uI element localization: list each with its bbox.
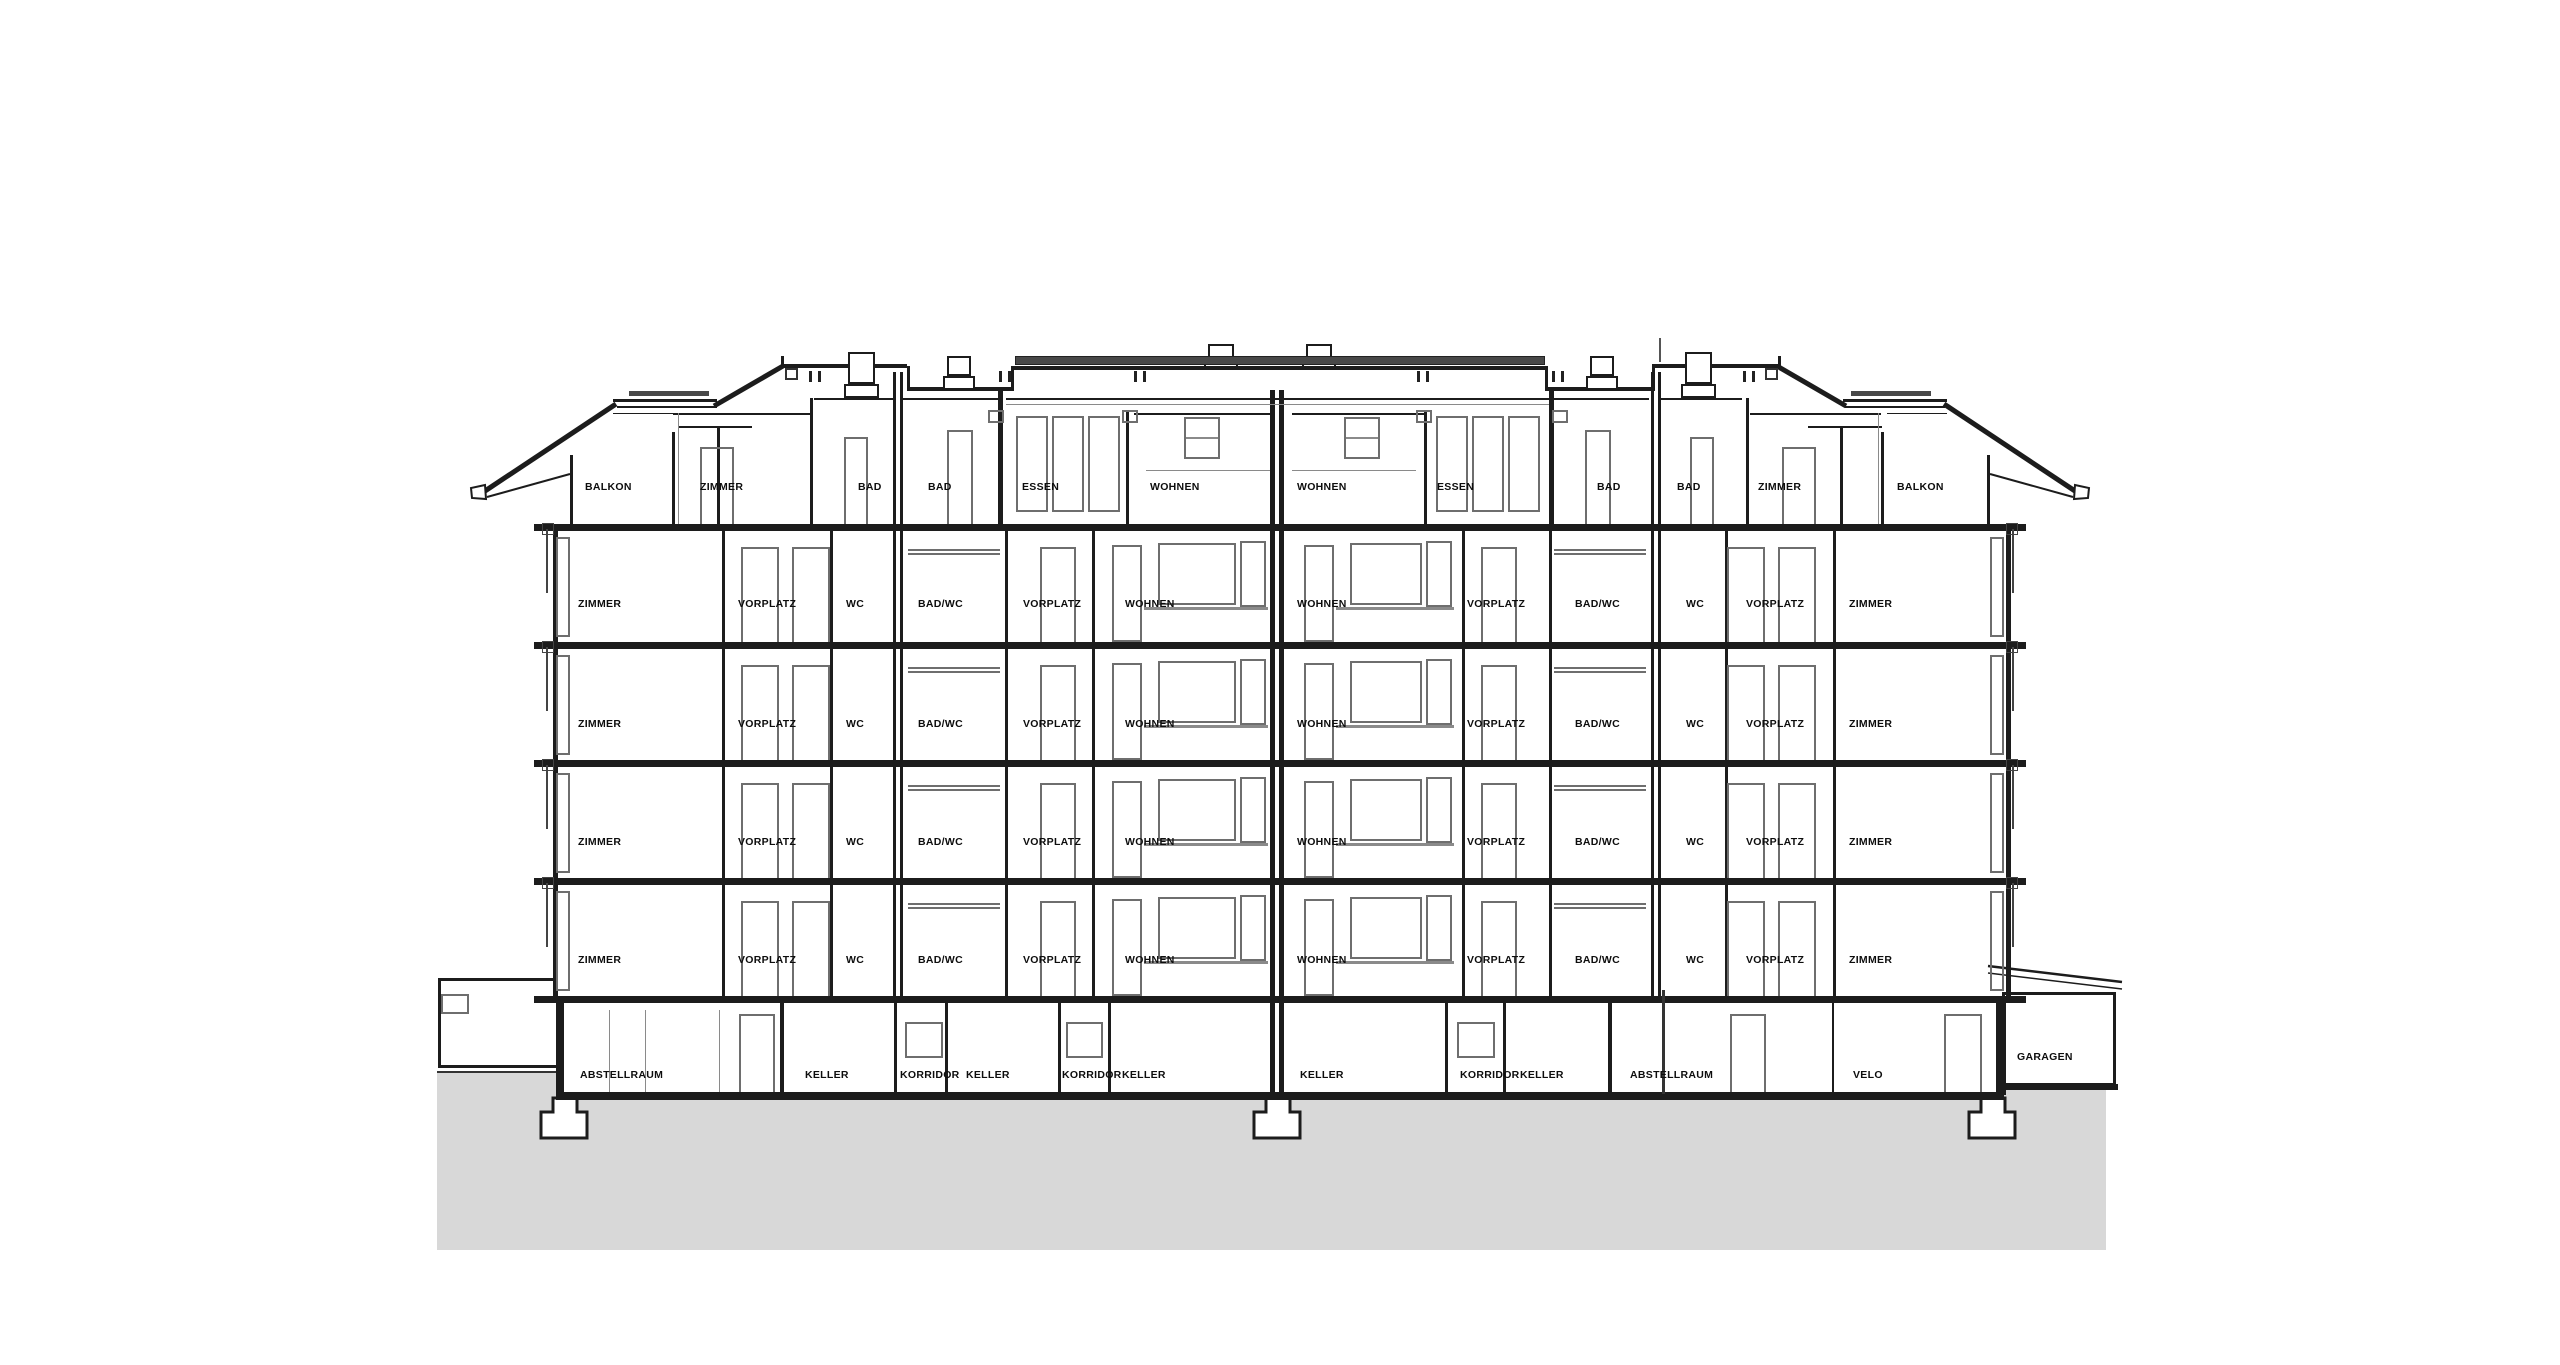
wohnen-tall-door bbox=[1304, 545, 1334, 642]
room-label: KELLER bbox=[1300, 1070, 1344, 1081]
basement-door bbox=[1730, 1014, 1766, 1092]
room-label: BAD/WC bbox=[918, 719, 963, 730]
room-label: BAD/WC bbox=[1575, 955, 1620, 966]
room-label: GARAGEN bbox=[2017, 1052, 2073, 1063]
interior-wall bbox=[1462, 531, 1465, 996]
balcony-railing-right bbox=[2012, 647, 2014, 711]
basement-wall bbox=[1608, 1003, 1612, 1092]
balcony-ceiling bbox=[1887, 413, 1947, 414]
basement-floor-slab bbox=[556, 1092, 2004, 1100]
closet-shelf bbox=[678, 426, 752, 428]
badwc-band bbox=[1554, 549, 1646, 555]
section-drawing: // ---- generic JSON bind ---- const dat… bbox=[0, 0, 2560, 1365]
roof-vent-icon bbox=[999, 371, 1011, 382]
facade-door-left bbox=[556, 773, 570, 873]
badwc-band bbox=[908, 667, 1000, 673]
room-label: VORPLATZ bbox=[1467, 955, 1525, 966]
lightwell-window bbox=[441, 994, 469, 1014]
room-label: KORRIDOR bbox=[1062, 1070, 1122, 1081]
zimmer-roof-band bbox=[1843, 399, 1947, 402]
roof-box-right bbox=[1765, 368, 1778, 380]
vorplatz-door bbox=[1727, 901, 1765, 996]
roof-vent-icon bbox=[809, 371, 821, 382]
chimney bbox=[1685, 352, 1712, 384]
vorplatz-door bbox=[1040, 783, 1076, 878]
attic-ceiling bbox=[1661, 398, 1742, 400]
room-label: WC bbox=[846, 599, 864, 610]
chimney-base bbox=[1681, 384, 1716, 398]
room-label: VORPLATZ bbox=[1467, 719, 1525, 730]
basement-window bbox=[905, 1022, 943, 1058]
roof-box-left bbox=[785, 368, 798, 380]
balcony-railing-left bbox=[546, 647, 548, 711]
wohnen-sill bbox=[1336, 961, 1454, 964]
room-label: BAD bbox=[1597, 482, 1621, 493]
balcony-parapet-right bbox=[1987, 455, 1990, 524]
wohnen-tall-window bbox=[1426, 659, 1452, 725]
vorplatz-door bbox=[1040, 665, 1076, 760]
balcony-bracket-left bbox=[542, 523, 554, 535]
window-rail bbox=[1292, 413, 1424, 415]
slab-nose-right bbox=[2002, 996, 2026, 1003]
attic-ceiling bbox=[673, 413, 810, 415]
vorplatz-door bbox=[741, 783, 779, 878]
badwc-band bbox=[1554, 785, 1646, 791]
attic-wall bbox=[1658, 372, 1661, 524]
wohnen-tall-door bbox=[1304, 781, 1334, 878]
balcony-bracket-left bbox=[542, 641, 554, 653]
room-label: WOHNEN bbox=[1297, 719, 1347, 730]
attic-mullion bbox=[1126, 412, 1129, 524]
interior-wall bbox=[1005, 531, 1008, 996]
gutter-right bbox=[2074, 485, 2089, 499]
basement-partition bbox=[719, 1010, 720, 1092]
balcony-parapet-left bbox=[570, 455, 573, 524]
zimmer-roof-band bbox=[613, 399, 717, 402]
gutter-left bbox=[471, 485, 486, 499]
vorplatz-door bbox=[741, 547, 779, 642]
room-label: WOHNEN bbox=[1150, 482, 1200, 493]
room-label: ZIMMER bbox=[578, 837, 621, 848]
room-label: BAD/WC bbox=[1575, 837, 1620, 848]
wohnen-tall-window bbox=[1240, 895, 1266, 961]
essen-glazing-panel bbox=[1508, 416, 1540, 512]
vorplatz-door bbox=[741, 665, 779, 760]
essen-glazing-panel bbox=[1052, 416, 1084, 512]
interior-wall bbox=[1658, 531, 1661, 996]
room-label: ABSTELLRAUM bbox=[580, 1070, 663, 1081]
facade-door-right bbox=[1990, 773, 2004, 873]
room-label: BAD bbox=[928, 482, 952, 493]
vorplatz-door bbox=[741, 901, 779, 996]
attic-bad-door bbox=[947, 430, 973, 524]
basement-wall bbox=[894, 1003, 897, 1092]
solar-strip-left bbox=[629, 391, 709, 396]
wall-box-icon bbox=[988, 410, 1004, 423]
eave-soffit-left bbox=[487, 474, 570, 497]
room-label: KELLER bbox=[966, 1070, 1010, 1081]
room-label: VORPLATZ bbox=[738, 955, 796, 966]
wohnen-tall-door bbox=[1112, 663, 1142, 760]
wohnen-tall-window bbox=[1240, 541, 1266, 607]
room-label: WC bbox=[846, 955, 864, 966]
vorplatz-door bbox=[1481, 547, 1517, 642]
room-label: WOHNEN bbox=[1297, 955, 1347, 966]
room-label: ZIMMER bbox=[578, 955, 621, 966]
room-label: ESSEN bbox=[1437, 482, 1474, 493]
basement-wall bbox=[1270, 1003, 1275, 1092]
wohnen-tall-door bbox=[1304, 663, 1334, 760]
wohnen-tall-window bbox=[1240, 659, 1266, 725]
roof-flat bbox=[1011, 366, 1548, 370]
room-label: BAD/WC bbox=[918, 955, 963, 966]
chimney bbox=[848, 352, 875, 384]
essen-glazing-panel bbox=[1472, 416, 1504, 512]
room-label: WC bbox=[846, 837, 864, 848]
room-label: KELLER bbox=[1520, 1070, 1564, 1081]
wohnen-tall-window bbox=[1426, 895, 1452, 961]
interior-wall bbox=[830, 531, 833, 996]
window-rail bbox=[1134, 413, 1270, 415]
roof-step bbox=[1011, 366, 1014, 391]
balcony-railing-right bbox=[2012, 529, 2014, 593]
room-label: WOHNEN bbox=[1125, 955, 1175, 966]
wohnen-wide-window bbox=[1350, 779, 1422, 841]
attic-square-window bbox=[1344, 417, 1380, 459]
room-label: ZIMMER bbox=[1849, 719, 1892, 730]
solar-strip-main bbox=[1015, 356, 1545, 365]
attic-ceiling bbox=[1006, 398, 1549, 400]
attic-wall bbox=[1881, 432, 1884, 524]
room-label: VORPLATZ bbox=[1023, 719, 1081, 730]
wohnen-sill bbox=[1336, 607, 1454, 610]
facade-door-left bbox=[556, 655, 570, 755]
room-label: BALKON bbox=[1897, 482, 1944, 493]
badwc-band bbox=[908, 549, 1000, 555]
roof-vent-icon bbox=[1743, 371, 1755, 382]
room-label: KELLER bbox=[805, 1070, 849, 1081]
vorplatz-door bbox=[792, 665, 830, 760]
attic-ceiling bbox=[1552, 398, 1649, 400]
roof-step bbox=[1778, 356, 1781, 368]
vorplatz-door bbox=[792, 547, 830, 642]
vorplatz-door bbox=[792, 901, 830, 996]
room-label: WC bbox=[1686, 837, 1704, 848]
interior-wall bbox=[1833, 531, 1836, 996]
vorplatz-door bbox=[1040, 901, 1076, 996]
attic-wall bbox=[893, 372, 896, 524]
facade-door-right bbox=[1990, 655, 2004, 755]
wohnen-tall-door bbox=[1112, 545, 1142, 642]
roof-step bbox=[781, 356, 784, 368]
attic-party-wall bbox=[1270, 390, 1275, 524]
interior-wall bbox=[1092, 531, 1095, 996]
room-label: BAD/WC bbox=[918, 837, 963, 848]
room-label: ZIMMER bbox=[700, 482, 743, 493]
roof-flat bbox=[1652, 364, 1778, 368]
balcony-railing-left bbox=[546, 529, 548, 593]
roof-slope-right-lower bbox=[1944, 404, 2075, 491]
wohnen-wide-window bbox=[1158, 661, 1236, 723]
attic-mullion bbox=[1424, 412, 1427, 524]
balcony-railing-right bbox=[2012, 765, 2014, 829]
wall-box-icon bbox=[1552, 410, 1568, 423]
room-label: WC bbox=[1686, 599, 1704, 610]
chimney-base bbox=[1586, 376, 1618, 390]
room-label: VELO bbox=[1853, 1070, 1883, 1081]
basement-wall bbox=[1445, 1003, 1448, 1092]
attic-ceiling bbox=[814, 398, 893, 400]
room-label: WOHNEN bbox=[1297, 599, 1347, 610]
facade-door-left bbox=[556, 537, 570, 637]
basement-wall bbox=[1832, 1003, 1834, 1092]
interior-wall bbox=[722, 531, 725, 996]
wall-box-icon bbox=[1416, 410, 1432, 423]
sill-line bbox=[1292, 470, 1416, 471]
basement-wall bbox=[780, 1003, 784, 1092]
room-label: WOHNEN bbox=[1125, 837, 1175, 848]
garage-floor-slab bbox=[1998, 1084, 2118, 1090]
wohnen-wide-window bbox=[1158, 543, 1236, 605]
room-label: KELLER bbox=[1122, 1070, 1166, 1081]
room-label: ZIMMER bbox=[1849, 599, 1892, 610]
room-label: VORPLATZ bbox=[1023, 837, 1081, 848]
roof-vent-icon bbox=[1552, 371, 1564, 382]
room-label: ESSEN bbox=[1022, 482, 1059, 493]
roof-step bbox=[1652, 366, 1655, 391]
vorplatz-door bbox=[1778, 665, 1816, 760]
basement-door bbox=[739, 1014, 775, 1092]
room-label: VORPLATZ bbox=[1746, 719, 1804, 730]
attic-wall bbox=[1651, 372, 1654, 524]
chimney bbox=[947, 356, 971, 376]
vorplatz-door bbox=[1481, 901, 1517, 996]
attic-party-wall bbox=[1279, 390, 1284, 524]
balcony-bracket-left bbox=[542, 759, 554, 771]
garage-box bbox=[2002, 992, 2116, 1086]
facade-door-right bbox=[1990, 891, 2004, 991]
attic-wall bbox=[810, 398, 813, 524]
balcony-railing-left bbox=[546, 883, 548, 947]
badwc-band bbox=[1554, 667, 1646, 673]
wohnen-tall-window bbox=[1426, 777, 1452, 843]
roof-vent-icon bbox=[1417, 371, 1429, 382]
vorplatz-door bbox=[792, 783, 830, 878]
essen-glazing-panel bbox=[1436, 416, 1468, 512]
wall-box-icon bbox=[1122, 410, 1138, 423]
room-label: VORPLATZ bbox=[738, 599, 796, 610]
attic-ceiling-liner bbox=[1006, 404, 1549, 405]
vorplatz-door bbox=[1778, 783, 1816, 878]
vorplatz-door bbox=[1727, 547, 1765, 642]
badwc-band bbox=[1554, 903, 1646, 909]
closet-shelf bbox=[1808, 426, 1882, 428]
room-label: ZIMMER bbox=[578, 719, 621, 730]
vorplatz-door bbox=[1778, 901, 1816, 996]
essen-glazing-panel bbox=[1016, 416, 1048, 512]
roof-step bbox=[1545, 366, 1548, 391]
room-label: VORPLATZ bbox=[1023, 599, 1081, 610]
wohnen-tall-window bbox=[1426, 541, 1452, 607]
zimmer-roof-band bbox=[1845, 406, 1945, 408]
interior-wall bbox=[1279, 531, 1284, 996]
balcony-railing-left bbox=[546, 765, 548, 829]
room-label: VORPLATZ bbox=[738, 719, 796, 730]
room-label: WOHNEN bbox=[1297, 837, 1347, 848]
roof-slope-left-lower bbox=[485, 404, 616, 491]
essen-glazing-panel bbox=[1088, 416, 1120, 512]
basement-wall-left bbox=[556, 1003, 564, 1095]
vorplatz-door bbox=[1481, 665, 1517, 760]
slab-nose-left bbox=[534, 996, 558, 1003]
interior-wall bbox=[893, 531, 896, 996]
basement-wall bbox=[1058, 1003, 1061, 1092]
basement-window bbox=[1457, 1022, 1495, 1058]
room-label: BALKON bbox=[585, 482, 632, 493]
wohnen-sill bbox=[1336, 843, 1454, 846]
wohnen-wide-window bbox=[1350, 543, 1422, 605]
wohnen-wide-window bbox=[1350, 897, 1422, 959]
solar-strip-right bbox=[1851, 391, 1931, 396]
room-label: BAD/WC bbox=[1575, 599, 1620, 610]
room-label: BAD bbox=[1677, 482, 1701, 493]
roof-vent-icon bbox=[1134, 371, 1146, 382]
room-label: KORRIDOR bbox=[900, 1070, 960, 1081]
room-label: VORPLATZ bbox=[1746, 955, 1804, 966]
reference-rod-top bbox=[1659, 338, 1661, 362]
balcony-railing-right bbox=[2012, 883, 2014, 947]
room-label: WOHNEN bbox=[1125, 599, 1175, 610]
room-label: VORPLATZ bbox=[1746, 599, 1804, 610]
balcony-ceiling bbox=[613, 413, 673, 414]
room-label: VORPLATZ bbox=[738, 837, 796, 848]
room-label: WC bbox=[1686, 719, 1704, 730]
closet-side bbox=[1840, 428, 1843, 524]
vorplatz-door bbox=[1778, 547, 1816, 642]
attic-ceiling bbox=[1750, 413, 1881, 415]
room-label: VORPLATZ bbox=[1467, 837, 1525, 848]
zimmer-roof-band bbox=[617, 406, 717, 408]
basement-wall-right bbox=[1996, 1003, 2006, 1095]
wohnen-wide-window bbox=[1350, 661, 1422, 723]
room-label: ABSTELLRAUM bbox=[1630, 1070, 1713, 1081]
room-label: BAD/WC bbox=[918, 599, 963, 610]
room-label: WOHNEN bbox=[1297, 482, 1347, 493]
wohnen-wide-window bbox=[1158, 779, 1236, 841]
room-label: WC bbox=[846, 719, 864, 730]
drain-pipe bbox=[1878, 413, 1879, 524]
wohnen-wide-window bbox=[1158, 897, 1236, 959]
wohnen-sill bbox=[1336, 725, 1454, 728]
attic-wall bbox=[1746, 398, 1749, 524]
vorplatz-door bbox=[1727, 665, 1765, 760]
attic-wall bbox=[672, 432, 675, 524]
chimney-base bbox=[844, 384, 879, 398]
basement-wall bbox=[1279, 1003, 1284, 1092]
facade-door-left bbox=[556, 891, 570, 991]
room-label: ZIMMER bbox=[1758, 482, 1801, 493]
room-label: ZIMMER bbox=[578, 599, 621, 610]
roof-slope-left-upper bbox=[714, 366, 783, 406]
attic-wall bbox=[900, 372, 903, 524]
wohnen-tall-door bbox=[1112, 899, 1142, 996]
room-label: VORPLATZ bbox=[1467, 599, 1525, 610]
vorplatz-door bbox=[1727, 783, 1765, 878]
badwc-band bbox=[908, 785, 1000, 791]
interior-wall bbox=[1549, 531, 1552, 996]
room-label: ZIMMER bbox=[1849, 955, 1892, 966]
room-label: ZIMMER bbox=[1849, 837, 1892, 848]
balcony-bracket-left bbox=[542, 877, 554, 889]
vorplatz-door bbox=[1481, 783, 1517, 878]
basement-door bbox=[1944, 1014, 1982, 1092]
room-label: VORPLATZ bbox=[1023, 955, 1081, 966]
badwc-band bbox=[908, 903, 1000, 909]
sill-line bbox=[1146, 470, 1270, 471]
interior-wall bbox=[900, 531, 903, 996]
room-label: VORPLATZ bbox=[1746, 837, 1804, 848]
chimney bbox=[1590, 356, 1614, 376]
attic-bad-door bbox=[1585, 430, 1611, 524]
drain-pipe bbox=[678, 413, 679, 524]
attic-square-window bbox=[1184, 417, 1220, 459]
attic-ceiling bbox=[903, 398, 998, 400]
room-label: BAD bbox=[858, 482, 882, 493]
facade-door-right bbox=[1990, 537, 2004, 637]
wohnen-tall-window bbox=[1240, 777, 1266, 843]
interior-wall bbox=[1651, 531, 1654, 996]
vorplatz-door bbox=[1040, 547, 1076, 642]
chimney-base bbox=[943, 376, 975, 390]
eave-soffit-right bbox=[1990, 474, 2073, 497]
interior-wall bbox=[1270, 531, 1275, 996]
room-label: WC bbox=[1686, 955, 1704, 966]
wohnen-tall-door bbox=[1112, 781, 1142, 878]
wohnen-tall-door bbox=[1304, 899, 1334, 996]
roof-step bbox=[907, 366, 910, 391]
roof-slope-right-upper bbox=[1777, 366, 1846, 406]
room-label: BAD/WC bbox=[1575, 719, 1620, 730]
room-label: WOHNEN bbox=[1125, 719, 1175, 730]
lightwell-box bbox=[438, 978, 556, 1068]
room-label: KORRIDOR bbox=[1460, 1070, 1520, 1081]
basement-window bbox=[1066, 1022, 1103, 1058]
roof-flat bbox=[781, 364, 907, 368]
